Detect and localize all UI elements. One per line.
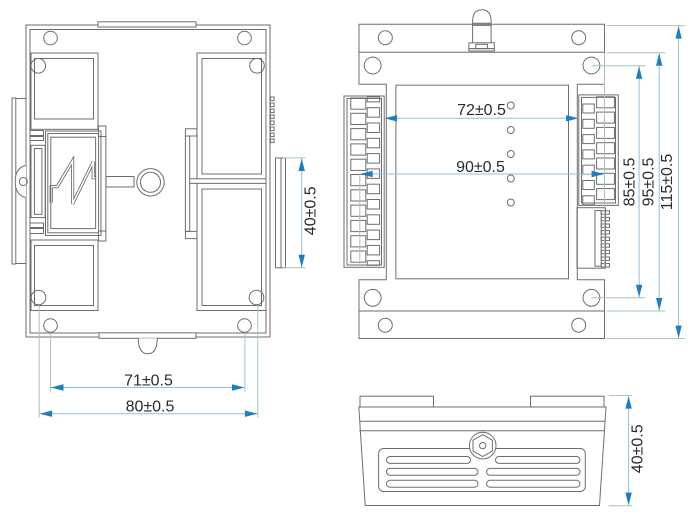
svg-text:80±0.5: 80±0.5	[126, 398, 175, 415]
svg-text:95±0.5: 95±0.5	[641, 157, 658, 206]
svg-text:90±0.5: 90±0.5	[456, 159, 505, 176]
svg-text:40±0.5: 40±0.5	[630, 424, 647, 473]
svg-text:85±0.5: 85±0.5	[622, 157, 639, 206]
svg-text:71±0.5: 71±0.5	[124, 372, 173, 389]
svg-text:72±0.5: 72±0.5	[457, 102, 506, 119]
svg-text:115±0.5: 115±0.5	[659, 154, 676, 211]
svg-text:40±0.5: 40±0.5	[303, 186, 320, 235]
